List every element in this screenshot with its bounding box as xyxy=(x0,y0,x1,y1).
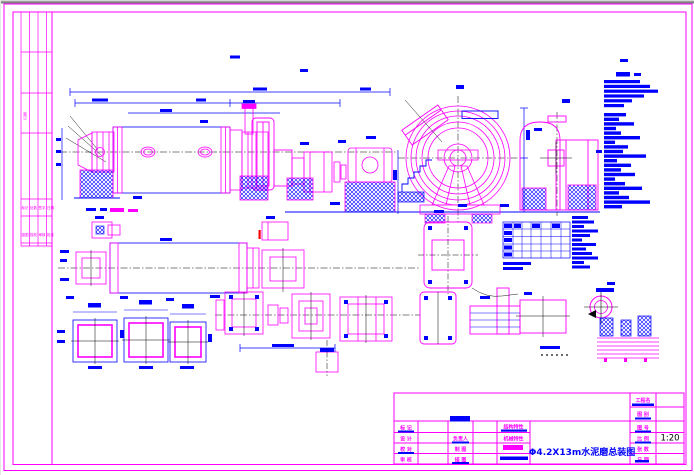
design-label: 设 计 xyxy=(400,436,412,443)
responsible-label: 负责人 xyxy=(453,436,469,443)
cad-viewer-window: 装订 标记 处数 签字 日期 描图 描校 审核 批准 xyxy=(0,0,694,475)
red-mark xyxy=(259,230,261,239)
binding-edge-label: 装订 xyxy=(23,111,28,120)
drawing-number-label: 图 号 xyxy=(637,425,649,432)
sheet-count-label: 张 数 xyxy=(637,446,650,453)
drawing-category-label: 图 别 xyxy=(637,411,649,418)
paper-background xyxy=(0,0,694,475)
scale-label: 比 例 xyxy=(637,436,649,443)
stamp-bar xyxy=(450,416,470,422)
cad-sheet: 装订 标记 处数 签字 日期 描图 描校 审核 批准 xyxy=(0,0,694,475)
revision-row1-cell: 标记 xyxy=(22,205,29,210)
revision-row2-cell: 描图 xyxy=(22,232,29,237)
revision-row1-cell: 日期 xyxy=(47,205,54,210)
revision-row1-cell: 处数 xyxy=(30,205,37,210)
mark-label: 标 记 xyxy=(399,425,412,432)
audit-label: 审 核 xyxy=(400,457,412,464)
signature-bar-magenta xyxy=(503,445,523,450)
signature-bar-blue xyxy=(500,457,528,461)
revision-row2-cell: 描校 xyxy=(30,232,37,237)
mechanical-spec-label: 机械特性 xyxy=(502,436,523,443)
window-edge-highlight xyxy=(0,0,694,1)
revision-row2-cell: 审核 xyxy=(39,232,46,237)
revision-row1-cell: 签字 xyxy=(39,205,46,210)
scale-value: 1:20 xyxy=(660,434,679,444)
structure-spec-label: 结构特性 xyxy=(503,424,523,431)
revision-row2-cell: 批准 xyxy=(47,232,54,237)
window-top-strip xyxy=(0,1,694,3)
drawing-title: Φ4.2X13m水泥磨总装图 xyxy=(529,446,635,458)
draft-label: 制 图 xyxy=(455,446,467,453)
check-label: 校 对 xyxy=(400,446,412,453)
project-name-label: 工程名 xyxy=(635,397,650,404)
window-left-edge xyxy=(0,0,1,475)
